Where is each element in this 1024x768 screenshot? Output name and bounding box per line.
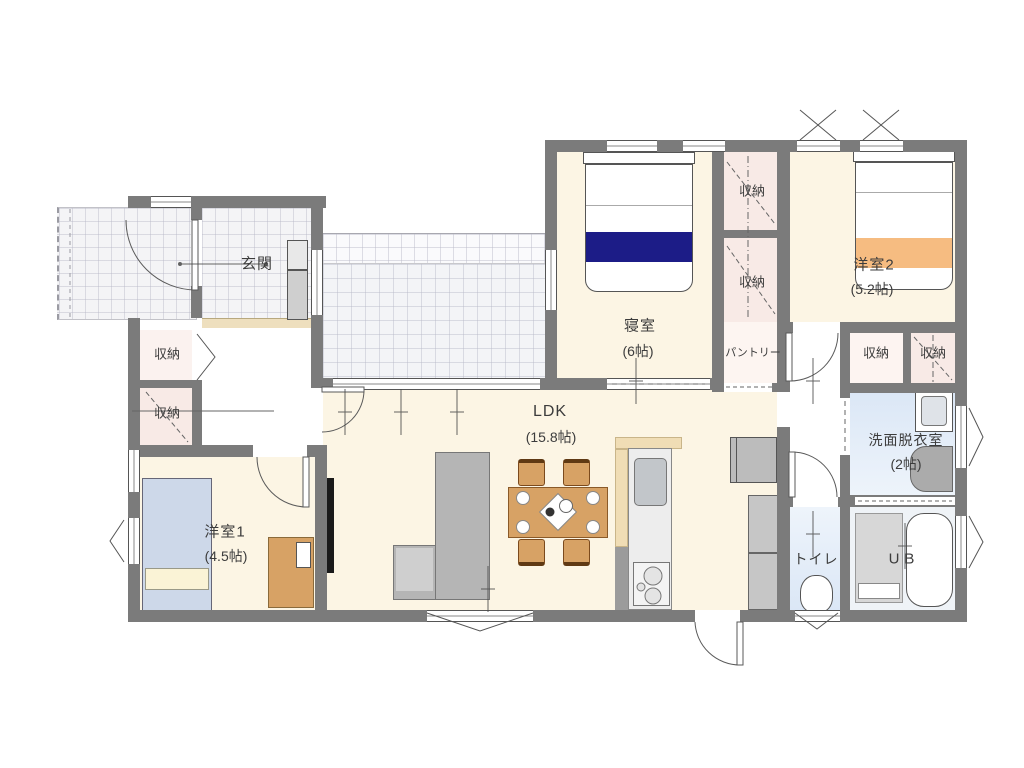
vanity-bowl: [921, 396, 947, 426]
terrace-lower: [323, 263, 545, 378]
refrigerator: [730, 437, 777, 483]
dining-table: [508, 487, 608, 538]
casement-x-mark: [800, 110, 836, 140]
casement-x-mark: [863, 110, 899, 140]
label-pantry: パントリー: [725, 344, 781, 360]
label-youshitsu1-size: (4.5帖): [205, 546, 248, 566]
sliding-door-gap: [840, 398, 850, 455]
window: [427, 610, 533, 622]
window: [797, 140, 840, 152]
window: [151, 196, 191, 208]
bath-drain: [858, 583, 900, 599]
shoe-cabinet: [287, 270, 308, 320]
hall-floor: [202, 328, 311, 447]
window: [607, 140, 657, 152]
bed-blanket-navy: [586, 232, 692, 262]
tv: [327, 478, 334, 573]
wall: [311, 196, 323, 250]
pantry-opening: [724, 383, 772, 392]
casement-chevron: [969, 408, 983, 466]
desk-chair: [296, 542, 311, 568]
window: [683, 140, 725, 152]
terrace-sliding-window: [333, 378, 540, 390]
kitchen-lower-strip: [615, 547, 628, 611]
kitchen-counter-side: [615, 449, 628, 547]
bed2-fold-line: [856, 192, 952, 193]
shoe-cabinet-top: [287, 240, 308, 270]
window: [860, 140, 903, 152]
dining-chair: [518, 539, 545, 566]
label-ldk: LDK: [533, 403, 567, 421]
label-closet-hall-upper: 収納: [154, 344, 180, 363]
hallway-floor: [790, 333, 840, 497]
window: [795, 610, 840, 622]
label-ldk-size: (15.8帖): [526, 427, 577, 447]
door-gap: [793, 497, 838, 507]
casement-x-mark: [863, 110, 899, 140]
sofa-seat: [396, 548, 433, 591]
casement-x-mark: [800, 110, 836, 140]
label-closet-bed-upper: 収納: [739, 181, 765, 200]
label-senmen: 洗面脱衣室: [869, 430, 944, 450]
wall: [128, 610, 967, 622]
label-shinshitsu: 寝室: [624, 315, 656, 336]
window: [128, 450, 140, 492]
label-closet-right1: 収納: [863, 343, 889, 362]
cupboard: [748, 495, 778, 553]
window: [545, 250, 557, 310]
wall: [712, 230, 777, 238]
toilet-bowl: [800, 575, 833, 613]
dining-chair: [518, 459, 545, 486]
label-toilet: トイレ: [794, 549, 839, 569]
casement-chevron: [969, 516, 983, 568]
label-ub: UB: [889, 551, 920, 568]
terrace-upper: [323, 233, 545, 263]
back-door-leaf: [737, 622, 743, 665]
wall: [191, 286, 202, 318]
wall: [840, 497, 850, 610]
label-youshitsu2: 洋室2: [853, 254, 894, 275]
window: [128, 518, 140, 564]
floor-plan: 玄関 収納 収納 洋室1 (4.5帖) LDK (15.8帖) 寝室 (6帖) …: [0, 0, 1024, 768]
window: [955, 406, 967, 468]
stove: [633, 562, 670, 606]
back-door-arc: [695, 622, 740, 665]
kitchen-sink: [634, 458, 667, 506]
back-door-gap: [695, 610, 740, 622]
door-gap: [793, 322, 840, 333]
bath-door-gap: [855, 497, 955, 505]
double-bed: [585, 164, 693, 292]
label-closet-hall-lower: 収納: [154, 403, 180, 422]
sofa-back: [435, 452, 490, 600]
bed-fold-line: [586, 205, 692, 206]
label-senmen-size: (2帖): [890, 454, 921, 474]
cupboard: [748, 553, 778, 610]
wall: [311, 315, 323, 388]
bed-headboard: [583, 152, 695, 164]
window: [955, 516, 967, 568]
wall: [128, 380, 202, 388]
single-bed-1: [142, 478, 212, 612]
label-closet-right2: 収納: [920, 343, 946, 362]
wall: [191, 208, 202, 220]
door-gap: [253, 445, 307, 457]
dining-chair: [563, 459, 590, 486]
label-youshitsu1: 洋室1: [204, 521, 245, 542]
bed1-pillow: [145, 568, 209, 590]
wall: [315, 445, 327, 610]
entrance-door-gap: [191, 220, 202, 286]
wall: [777, 427, 790, 610]
window: [311, 250, 323, 315]
bedroom-sliding-door: [607, 378, 710, 390]
wall: [712, 140, 724, 390]
wall: [845, 383, 955, 393]
porch-floor: [57, 207, 197, 320]
label-youshitsu2-size: (5.2帖): [851, 279, 894, 299]
label-genkan: 玄関: [241, 253, 273, 274]
refrigerator-door-line: [736, 438, 737, 482]
casement-chevron: [110, 520, 124, 562]
dining-chair: [563, 539, 590, 566]
label-closet-bed-lower: 収納: [739, 272, 765, 291]
wall: [903, 333, 911, 383]
label-shinshitsu-size: (6帖): [622, 341, 653, 361]
